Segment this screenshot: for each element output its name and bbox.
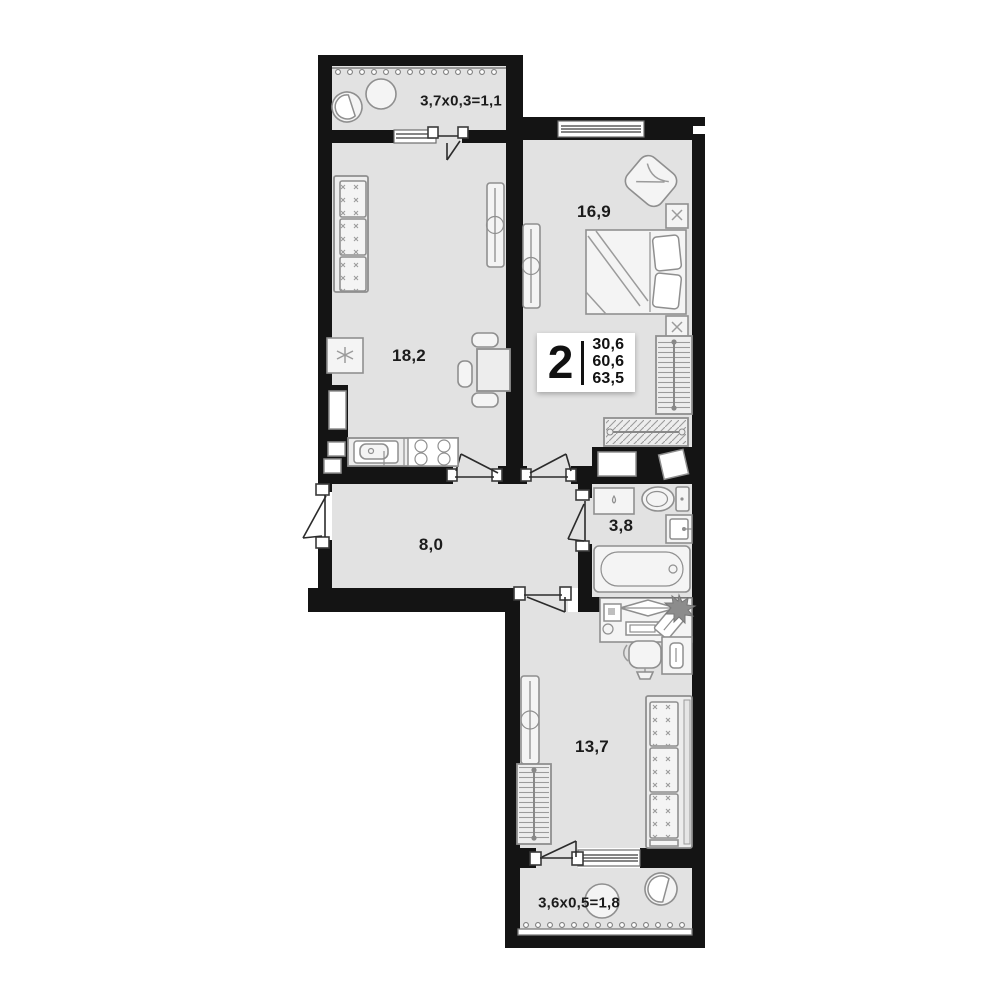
entrance-door	[303, 484, 332, 548]
room-label-hallway: 8,0	[419, 535, 443, 555]
living-wardrobe	[517, 764, 551, 844]
living-area: 30,6	[592, 337, 624, 354]
room-label-living-room: 13,7	[575, 737, 609, 757]
nightstand-top	[666, 204, 688, 228]
room-label-balcony-bottom: 3,6x0,5=1,8	[538, 895, 620, 912]
floorplan-page: 3,7x0,3=1,1 18,2 16,9 8,0 3,8 13,7 3,6x0…	[0, 0, 1000, 1000]
total-area: 63,5	[592, 371, 624, 388]
room-label-kitchen: 18,2	[392, 346, 426, 366]
area-values: 30,6 60,6 63,5	[592, 337, 624, 387]
kitchen-radiator	[487, 183, 505, 267]
bath-sink	[666, 515, 692, 543]
badge-divider	[581, 341, 584, 385]
bedroom-bench	[604, 418, 688, 446]
side-table	[662, 637, 692, 674]
wall-notch	[693, 126, 705, 134]
washing-machine	[594, 488, 634, 514]
room-label-balcony-top: 3,7x0,3=1,1	[420, 93, 502, 110]
living-sofa	[646, 696, 692, 848]
toilet	[642, 487, 689, 511]
kitchen-sink-icon	[354, 441, 398, 466]
bed	[586, 230, 686, 314]
balcony-table	[366, 79, 396, 109]
floorplan-canvas	[0, 0, 1000, 1000]
bedroom-radiator	[523, 224, 541, 308]
kitchen-counter	[348, 438, 458, 466]
rooms-count: 2	[548, 343, 574, 382]
bathtub	[594, 546, 690, 592]
kitchen-sofa	[334, 176, 368, 292]
fridge	[327, 338, 363, 373]
bedroom-wardrobe	[656, 336, 692, 414]
apartment-area: 60,6	[592, 354, 624, 371]
living-balcony-window	[578, 850, 640, 866]
room-label-bathroom: 3,8	[609, 516, 633, 536]
room-label-bedroom: 16,9	[577, 202, 611, 222]
apartment-info-badge: 2 30,6 60,6 63,5	[537, 333, 635, 392]
living-radiator	[521, 676, 539, 764]
stove-icon	[408, 438, 458, 466]
